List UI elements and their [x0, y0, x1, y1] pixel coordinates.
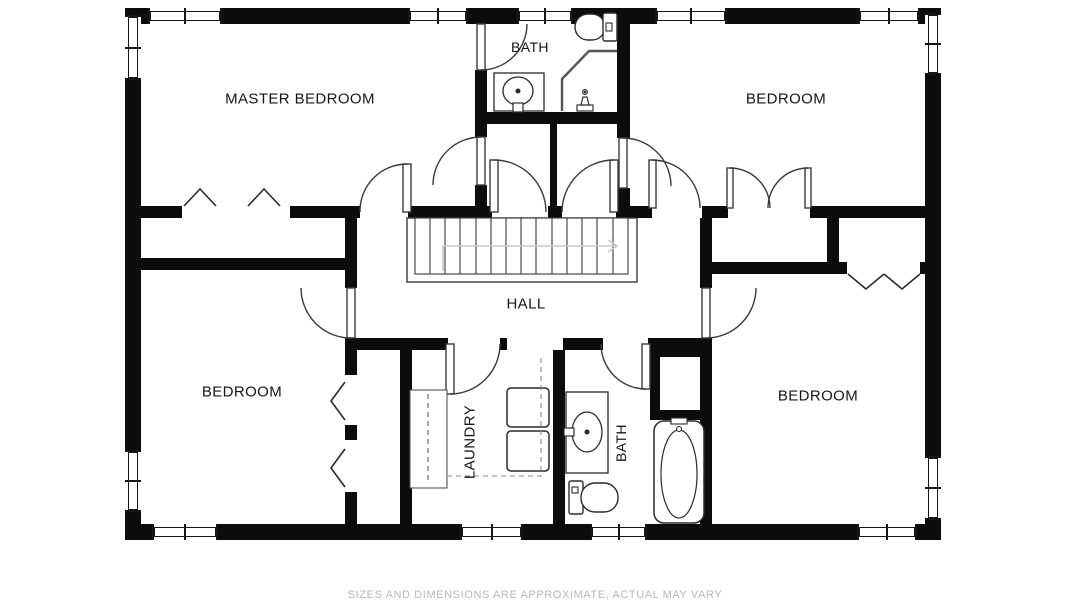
sink-bottom-icon [564, 392, 608, 473]
door-closet2 [562, 160, 618, 212]
label-master-bedroom: MASTER BEDROOM [225, 91, 375, 108]
floor-plan: MASTER BEDROOM BATH BEDROOM HALL BEDROOM… [0, 0, 1070, 600]
door-master-bedroom [360, 164, 411, 212]
label-bedroom-top-right: BEDROOM [746, 91, 826, 108]
bifold-marker-bl-closet-2 [331, 449, 345, 487]
label-bedroom-bottom-left: BEDROOM [202, 384, 282, 401]
door-master-to-closet1 [433, 137, 485, 185]
bifold-marker-master-1 [184, 189, 216, 206]
bifold-marker-br-closet-1 [848, 274, 884, 289]
door-double-closet-left [727, 168, 770, 208]
toilet-top-icon [575, 13, 617, 41]
label-hall: HALL [506, 296, 545, 313]
staircase [407, 218, 637, 282]
toilet-bottom-icon [569, 481, 618, 514]
door-bath-bottom [601, 344, 650, 389]
laundry-counter [410, 390, 447, 488]
bifold-marker-master-2 [248, 189, 280, 206]
door-bedroom-tr [649, 160, 700, 208]
label-bath-top: BATH [511, 39, 549, 55]
washer-icon [507, 388, 549, 427]
bifold-marker-br-closet-2 [884, 274, 920, 289]
dryer-icon [507, 431, 549, 471]
shower-icon [562, 51, 617, 111]
bifold-marker-bl-closet-1 [331, 382, 345, 420]
door-bedroom-br [702, 288, 756, 338]
door-laundry [446, 344, 500, 394]
door-bedroom-bl [301, 288, 355, 338]
label-bath-bottom: BATH [613, 424, 629, 462]
label-laundry: LAUNDRY [462, 405, 479, 479]
sink-top-icon [494, 73, 544, 112]
bathtub-icon [654, 418, 704, 523]
door-double-closet-right [768, 168, 811, 208]
disclaimer-text: SIZES AND DIMENSIONS ARE APPROXIMATE, AC… [348, 589, 723, 600]
door-bath-to-bedroom-tr [619, 138, 671, 188]
door-closet1 [490, 160, 546, 212]
label-bedroom-bottom-right: BEDROOM [778, 388, 858, 405]
